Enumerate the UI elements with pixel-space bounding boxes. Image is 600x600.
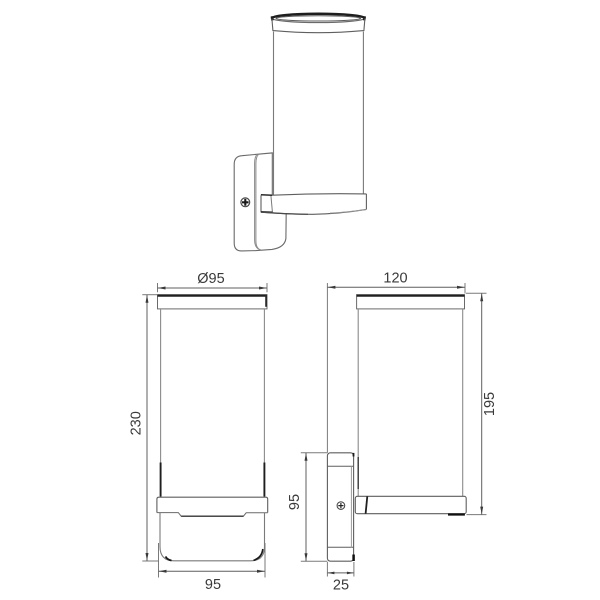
svg-text:95: 95 <box>287 494 303 510</box>
svg-text:95: 95 <box>205 577 221 593</box>
svg-text:Ø95: Ø95 <box>197 271 224 287</box>
svg-text:230: 230 <box>129 411 145 435</box>
svg-text:25: 25 <box>333 578 349 594</box>
svg-text:120: 120 <box>383 271 407 287</box>
svg-text:195: 195 <box>482 392 498 416</box>
